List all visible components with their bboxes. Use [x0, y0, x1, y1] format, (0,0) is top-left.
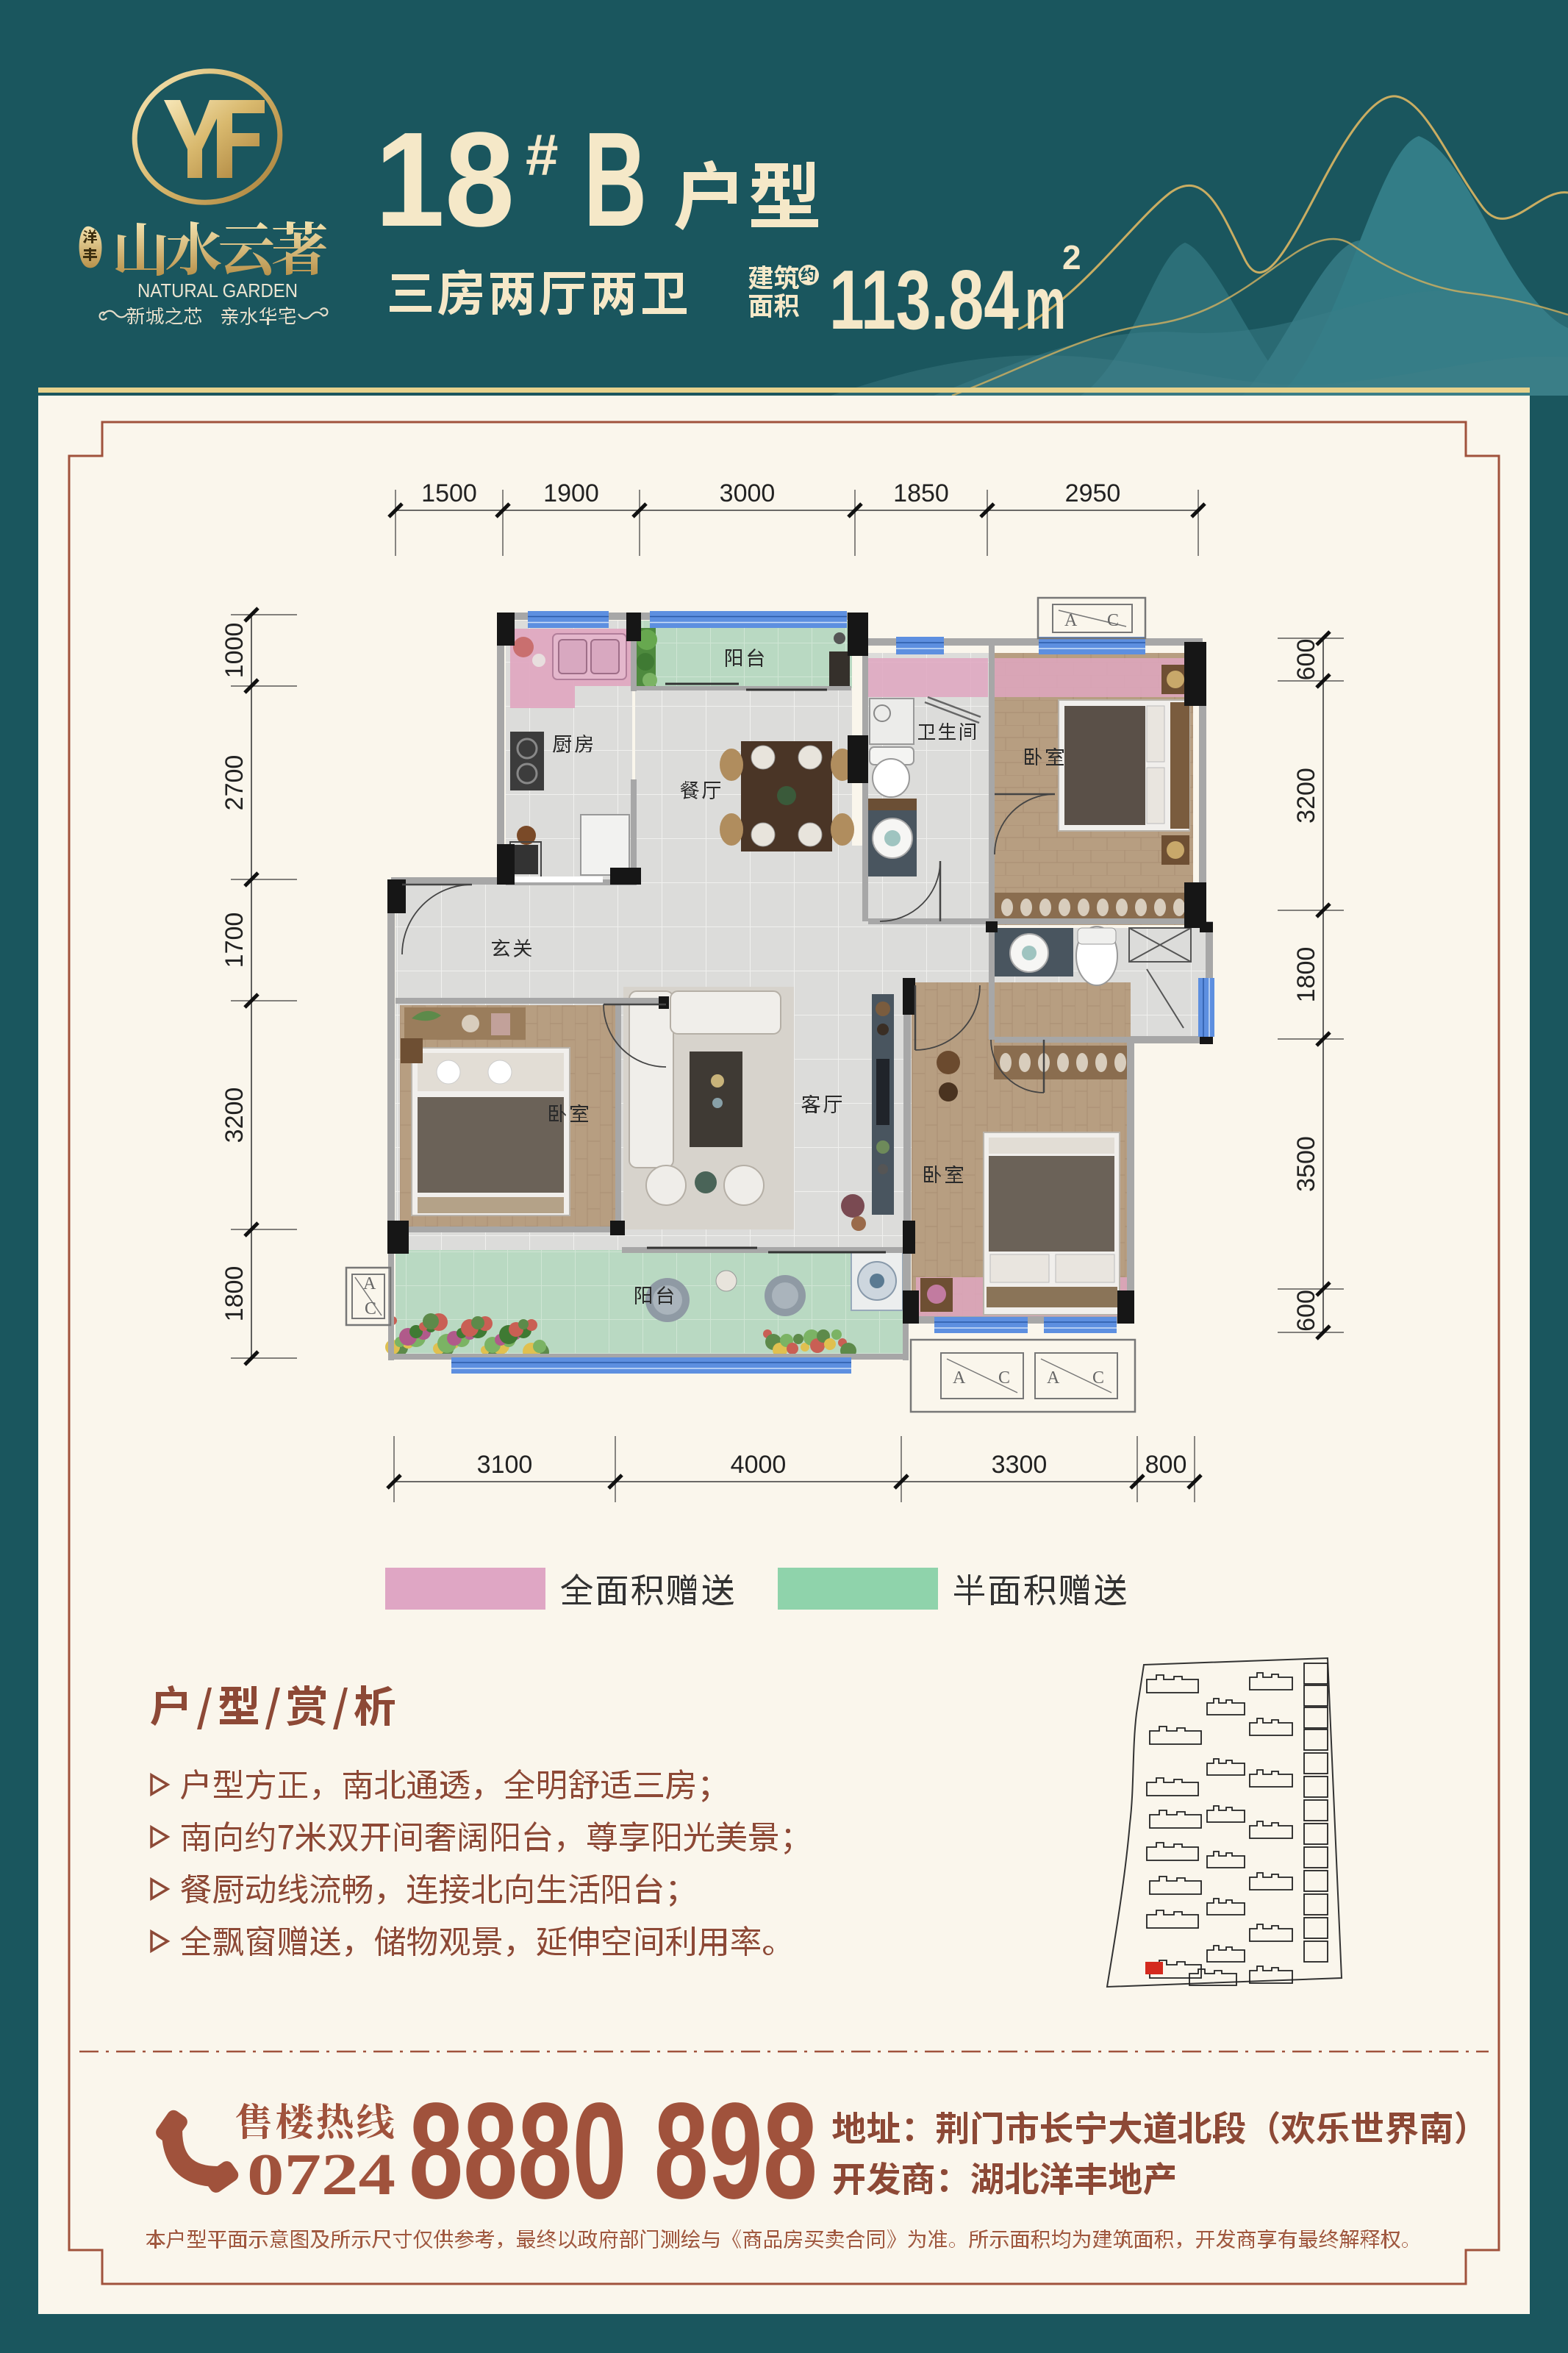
svg-text:113.84: 113.84 — [829, 254, 1019, 347]
svg-text:0724: 0724 — [247, 2143, 395, 2207]
svg-text:600: 600 — [1292, 1290, 1320, 1332]
svg-text:B: B — [584, 104, 647, 254]
svg-text:1500: 1500 — [421, 479, 477, 507]
svg-text:A: A — [1064, 611, 1078, 630]
svg-text:600: 600 — [1292, 639, 1320, 681]
svg-text:#: # — [526, 122, 559, 188]
svg-text:NATURAL GARDEN: NATURAL GARDEN — [137, 279, 298, 301]
svg-text:A: A — [1047, 1368, 1060, 1388]
svg-text:m: m — [1025, 263, 1066, 345]
svg-text:1700: 1700 — [221, 913, 248, 968]
svg-text:3000: 3000 — [720, 479, 776, 507]
svg-text:1000: 1000 — [221, 623, 248, 679]
svg-text:4000: 4000 — [731, 1451, 787, 1479]
svg-text:C: C — [998, 1368, 1010, 1388]
svg-text:8880 898: 8880 898 — [409, 2075, 817, 2227]
svg-text:C: C — [365, 1299, 376, 1318]
svg-text:2: 2 — [1062, 238, 1081, 276]
svg-text:18: 18 — [375, 104, 515, 254]
svg-text:3100: 3100 — [477, 1451, 533, 1479]
svg-text:3500: 3500 — [1292, 1136, 1320, 1192]
svg-text:1900: 1900 — [543, 479, 599, 507]
svg-text:A: A — [363, 1274, 376, 1293]
svg-text:2950: 2950 — [1065, 479, 1121, 507]
svg-text:3200: 3200 — [1292, 768, 1320, 824]
svg-text:2700: 2700 — [221, 755, 248, 811]
svg-text:1800: 1800 — [1292, 947, 1320, 1003]
svg-text:1800: 1800 — [221, 1266, 248, 1322]
svg-text:C: C — [1107, 611, 1119, 630]
svg-text:A: A — [953, 1368, 966, 1388]
svg-text:800: 800 — [1145, 1451, 1187, 1479]
svg-text:3300: 3300 — [992, 1451, 1048, 1479]
svg-text:C: C — [1092, 1368, 1104, 1388]
svg-text:1850: 1850 — [893, 479, 949, 507]
svg-text:3200: 3200 — [221, 1088, 248, 1143]
